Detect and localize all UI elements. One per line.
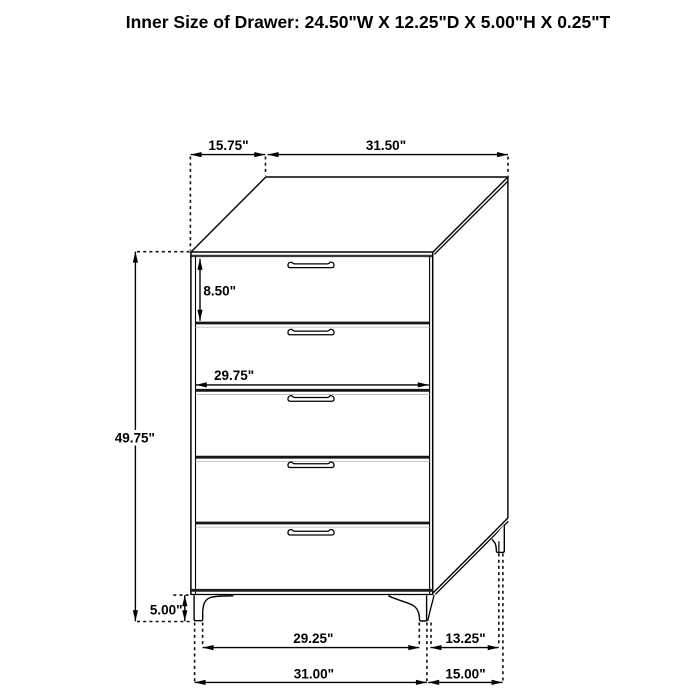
svg-text:8.50": 8.50"	[203, 283, 236, 298]
svg-text:Inner Size of Drawer: 24.50"W: Inner Size of Drawer: 24.50"W X 12.25"D …	[126, 12, 611, 32]
svg-text:15.75": 15.75"	[208, 138, 248, 153]
svg-text:13.25": 13.25"	[445, 631, 485, 646]
svg-text:31.50": 31.50"	[366, 138, 406, 153]
svg-text:5.00": 5.00"	[150, 603, 183, 618]
svg-text:29.25": 29.25"	[293, 631, 333, 646]
svg-text:15.00": 15.00"	[445, 667, 485, 682]
svg-text:31.00": 31.00"	[294, 667, 334, 682]
svg-text:49.75": 49.75"	[115, 431, 155, 446]
svg-text:29.75": 29.75"	[214, 368, 254, 383]
